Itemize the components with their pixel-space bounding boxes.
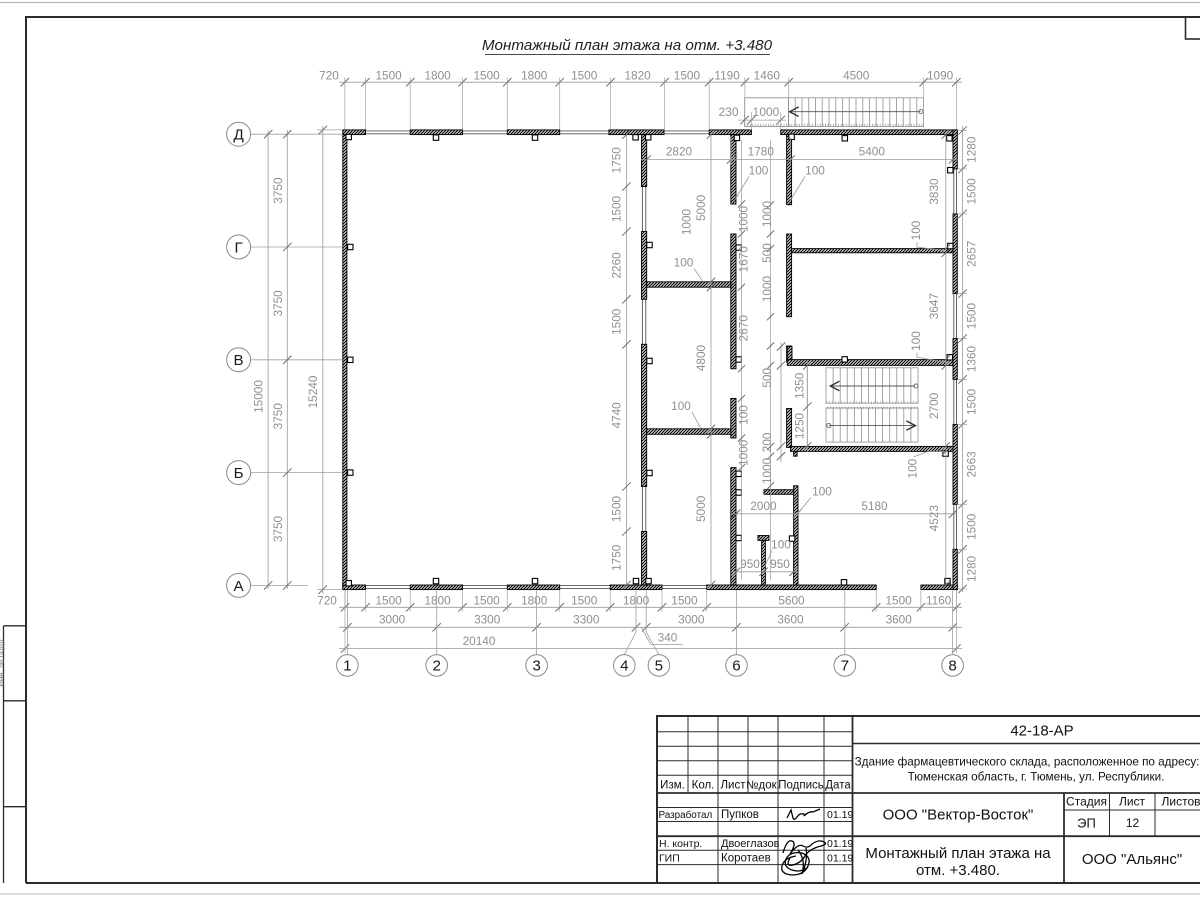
svg-text:Разработал: Разработал <box>659 810 713 821</box>
svg-text:1460: 1460 <box>754 69 781 83</box>
svg-text:1820: 1820 <box>624 69 651 83</box>
svg-text:1090: 1090 <box>927 69 954 83</box>
svg-text:100: 100 <box>812 484 832 498</box>
svg-text:340: 340 <box>658 631 678 645</box>
svg-text:1350: 1350 <box>793 372 807 399</box>
svg-text:Пупков: Пупков <box>721 809 759 821</box>
svg-text:3647: 3647 <box>927 293 941 319</box>
svg-text:5400: 5400 <box>859 145 886 159</box>
svg-text:8: 8 <box>948 658 956 675</box>
svg-text:1800: 1800 <box>521 594 548 608</box>
svg-text:Коротаев: Коротаев <box>721 852 771 864</box>
svg-text:2657: 2657 <box>965 241 979 267</box>
svg-text:ООО "Альянс": ООО "Альянс" <box>1082 851 1182 868</box>
svg-text:1000: 1000 <box>737 439 751 466</box>
svg-text:4740: 4740 <box>610 402 624 429</box>
svg-text:Тюменская область, г. Тюмень,: Тюменская область, г. Тюмень, ул. Респуб… <box>908 771 1165 784</box>
svg-text:1500: 1500 <box>965 178 979 205</box>
svg-text:2670: 2670 <box>737 315 751 342</box>
svg-text:А: А <box>234 578 245 595</box>
svg-text:Стадия: Стадия <box>1066 795 1107 809</box>
svg-text:1000: 1000 <box>753 105 780 119</box>
svg-text:1750: 1750 <box>610 544 624 571</box>
svg-text:Изм.: Изм. <box>660 780 685 792</box>
svg-text:Монтажный план этажа на отм. +: Монтажный план этажа на отм. +3.480 <box>482 37 773 54</box>
svg-text:500: 500 <box>760 368 774 388</box>
svg-text:4800: 4800 <box>694 344 708 371</box>
svg-text:1500: 1500 <box>571 594 598 608</box>
svg-text:1280: 1280 <box>965 555 979 582</box>
svg-text:230: 230 <box>718 105 738 119</box>
svg-text:7: 7 <box>841 658 849 675</box>
svg-text:1500: 1500 <box>885 594 912 608</box>
svg-text:1500: 1500 <box>571 69 598 83</box>
svg-text:1500: 1500 <box>674 69 701 83</box>
svg-text:1000: 1000 <box>680 208 694 235</box>
svg-text:950: 950 <box>740 557 760 571</box>
svg-text:1: 1 <box>343 658 351 675</box>
svg-text:1000: 1000 <box>760 200 774 227</box>
svg-text:12: 12 <box>1126 816 1140 830</box>
svg-text:3300: 3300 <box>573 613 600 627</box>
svg-text:1500: 1500 <box>610 495 624 522</box>
svg-text:3300: 3300 <box>474 613 501 627</box>
svg-text:1800: 1800 <box>424 594 451 608</box>
svg-text:1190: 1190 <box>714 69 740 83</box>
svg-text:ГИП: ГИП <box>659 852 680 864</box>
svg-text:3600: 3600 <box>777 613 804 627</box>
svg-text:20140: 20140 <box>463 634 496 648</box>
svg-text:2260: 2260 <box>610 252 624 279</box>
svg-text:ЭП: ЭП <box>1077 816 1096 831</box>
svg-text:1500: 1500 <box>473 69 500 83</box>
svg-text:5000: 5000 <box>694 194 708 221</box>
svg-text:ООО "Вектор-Восток": ООО "Вектор-Восток" <box>883 807 1034 824</box>
svg-text:Здание фармацевтического склад: Здание фармацевтического склада, располо… <box>855 756 1200 769</box>
svg-text:5180: 5180 <box>861 499 888 513</box>
svg-text:4523: 4523 <box>927 505 941 532</box>
svg-text:100: 100 <box>805 164 825 178</box>
svg-text:500: 500 <box>760 243 774 263</box>
svg-text:15240: 15240 <box>306 375 320 408</box>
svg-text:1360: 1360 <box>965 345 979 372</box>
svg-text:Д: Д <box>233 127 243 144</box>
svg-text:отм. +3.480.: отм. +3.480. <box>916 862 1000 879</box>
svg-text:5000: 5000 <box>694 495 708 522</box>
svg-text:№док.: №док. <box>746 780 780 792</box>
svg-text:1500: 1500 <box>671 594 698 608</box>
svg-text:100: 100 <box>737 405 751 425</box>
svg-text:950: 950 <box>770 557 790 571</box>
svg-text:Дата: Дата <box>825 780 851 792</box>
svg-text:1500: 1500 <box>473 594 500 608</box>
svg-text:Листов: Листов <box>1162 795 1200 809</box>
svg-text:2: 2 <box>432 658 440 675</box>
svg-text:1000: 1000 <box>760 275 774 302</box>
svg-text:6: 6 <box>732 658 740 675</box>
svg-text:5: 5 <box>655 658 663 675</box>
svg-text:1500: 1500 <box>965 303 979 330</box>
svg-text:42-18-АР: 42-18-АР <box>1010 723 1073 740</box>
svg-text:Инв. № подл.: Инв. № подл. <box>0 637 6 687</box>
svg-text:100: 100 <box>909 220 923 240</box>
svg-text:720: 720 <box>317 594 337 608</box>
svg-text:3830: 3830 <box>927 178 941 205</box>
svg-text:3750: 3750 <box>271 403 285 430</box>
svg-text:100: 100 <box>674 255 694 269</box>
svg-text:4500: 4500 <box>843 69 870 83</box>
svg-text:Монтажный план этажа на: Монтажный план этажа на <box>865 845 1051 862</box>
svg-text:1800: 1800 <box>424 69 451 83</box>
svg-text:Б: Б <box>234 465 244 482</box>
svg-text:Кол.: Кол. <box>692 780 715 792</box>
svg-text:100: 100 <box>749 164 769 178</box>
svg-text:1750: 1750 <box>610 147 624 174</box>
svg-text:01.19: 01.19 <box>827 809 853 821</box>
svg-text:Г: Г <box>234 239 242 256</box>
svg-text:5600: 5600 <box>778 594 805 608</box>
svg-text:1000: 1000 <box>737 205 751 232</box>
svg-text:1250: 1250 <box>793 412 807 439</box>
svg-text:01.19: 01.19 <box>827 852 853 864</box>
svg-text:1500: 1500 <box>965 513 979 540</box>
svg-text:2700: 2700 <box>927 392 941 419</box>
svg-text:200: 200 <box>760 432 774 452</box>
svg-text:100: 100 <box>906 458 920 478</box>
svg-text:3600: 3600 <box>886 613 913 627</box>
svg-text:1500: 1500 <box>965 388 979 415</box>
svg-text:3000: 3000 <box>379 613 406 627</box>
svg-text:3000: 3000 <box>678 613 705 627</box>
svg-text:1500: 1500 <box>610 195 624 222</box>
svg-text:720: 720 <box>319 69 339 83</box>
svg-text:3750: 3750 <box>271 290 285 317</box>
svg-text:Н. контр.: Н. контр. <box>659 838 702 850</box>
svg-text:100: 100 <box>771 537 791 551</box>
svg-text:15000: 15000 <box>252 380 266 413</box>
svg-text:1500: 1500 <box>375 69 402 83</box>
svg-text:3750: 3750 <box>271 515 285 542</box>
svg-text:100: 100 <box>671 399 691 413</box>
svg-text:1160: 1160 <box>926 594 952 608</box>
svg-text:1000: 1000 <box>760 457 774 484</box>
svg-text:4: 4 <box>620 658 628 675</box>
svg-text:100: 100 <box>909 331 923 351</box>
svg-text:3750: 3750 <box>271 177 285 204</box>
svg-text:Лист: Лист <box>721 780 747 792</box>
svg-text:2820: 2820 <box>666 145 693 159</box>
svg-text:2000: 2000 <box>750 499 777 513</box>
svg-text:1800: 1800 <box>521 69 548 83</box>
svg-text:1670: 1670 <box>737 246 751 273</box>
svg-text:01.19: 01.19 <box>827 838 853 850</box>
svg-text:1500: 1500 <box>375 594 402 608</box>
svg-text:Лист: Лист <box>1119 795 1146 809</box>
svg-text:В: В <box>234 352 244 369</box>
svg-text:Подпись: Подпись <box>778 780 824 792</box>
svg-text:1500: 1500 <box>610 308 624 335</box>
svg-text:Двоеглазов: Двоеглазов <box>721 838 780 850</box>
svg-text:2663: 2663 <box>965 451 979 478</box>
svg-text:3: 3 <box>532 658 540 675</box>
svg-text:1280: 1280 <box>965 136 979 163</box>
